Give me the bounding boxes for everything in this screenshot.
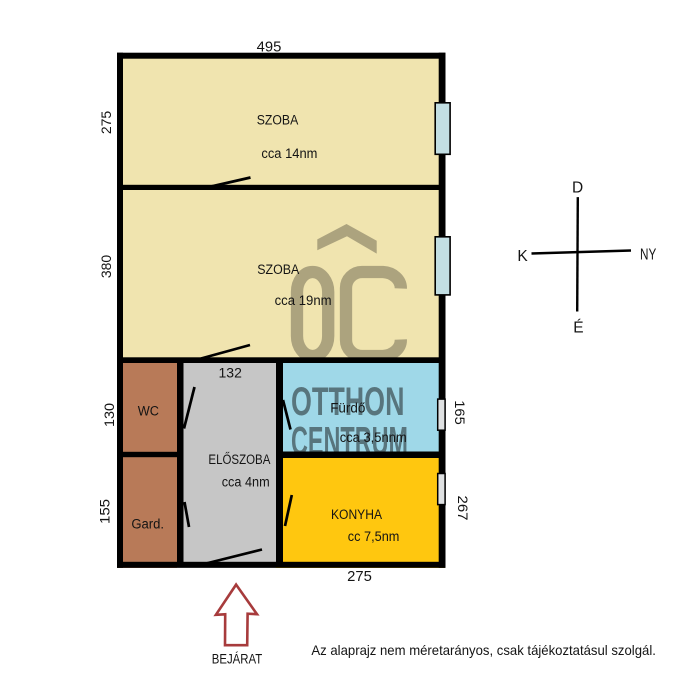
svg-text:SZOBA: SZOBA	[257, 112, 299, 127]
svg-text:380: 380	[98, 255, 114, 279]
svg-text:cca 19nm: cca 19nm	[275, 293, 332, 308]
svg-text:165: 165	[452, 400, 468, 425]
svg-text:155: 155	[97, 499, 113, 524]
svg-text:Gard.: Gard.	[131, 516, 164, 531]
svg-text:BEJÁRAT: BEJÁRAT	[212, 651, 263, 666]
svg-text:KONYHA: KONYHA	[331, 507, 382, 522]
svg-text:WC: WC	[138, 404, 159, 419]
svg-text:É: É	[573, 319, 583, 336]
svg-text:275: 275	[98, 111, 114, 135]
svg-text:132: 132	[219, 365, 243, 381]
svg-text:275: 275	[347, 569, 372, 585]
svg-text:ELŐSZOBA: ELŐSZOBA	[208, 452, 270, 467]
svg-text:267: 267	[455, 496, 471, 521]
svg-text:D: D	[572, 180, 583, 197]
svg-text:cca 3,5nnm: cca 3,5nnm	[340, 430, 407, 445]
svg-text:cc 7,5nm: cc 7,5nm	[348, 529, 400, 544]
svg-text:K: K	[517, 248, 528, 265]
svg-text:cca 14nm: cca 14nm	[261, 146, 317, 161]
svg-text:Fürdő: Fürdő	[330, 400, 365, 415]
svg-text:Az alaprajz nem méretarányos,: Az alaprajz nem méretarányos, csak tájék…	[311, 642, 656, 658]
svg-text:NY: NY	[640, 247, 656, 264]
svg-text:SZOBA: SZOBA	[257, 262, 299, 277]
svg-text:130: 130	[101, 403, 117, 427]
svg-text:cca 4nm: cca 4nm	[222, 474, 270, 489]
svg-text:495: 495	[257, 40, 282, 56]
